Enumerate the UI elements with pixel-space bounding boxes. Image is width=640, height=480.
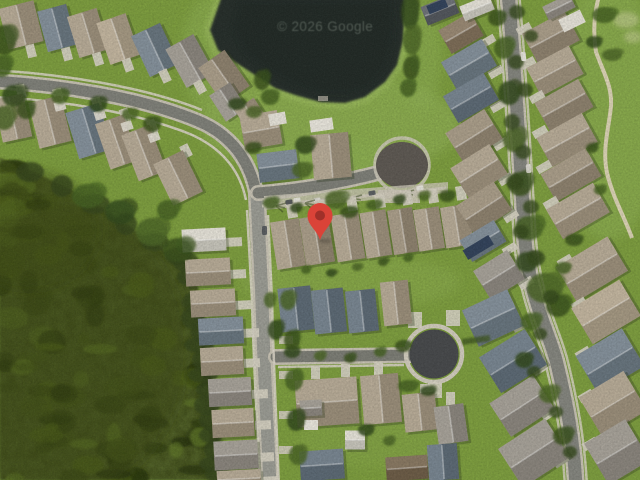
svg-text:© 2026 Google: © 2026 Google — [277, 19, 373, 34]
